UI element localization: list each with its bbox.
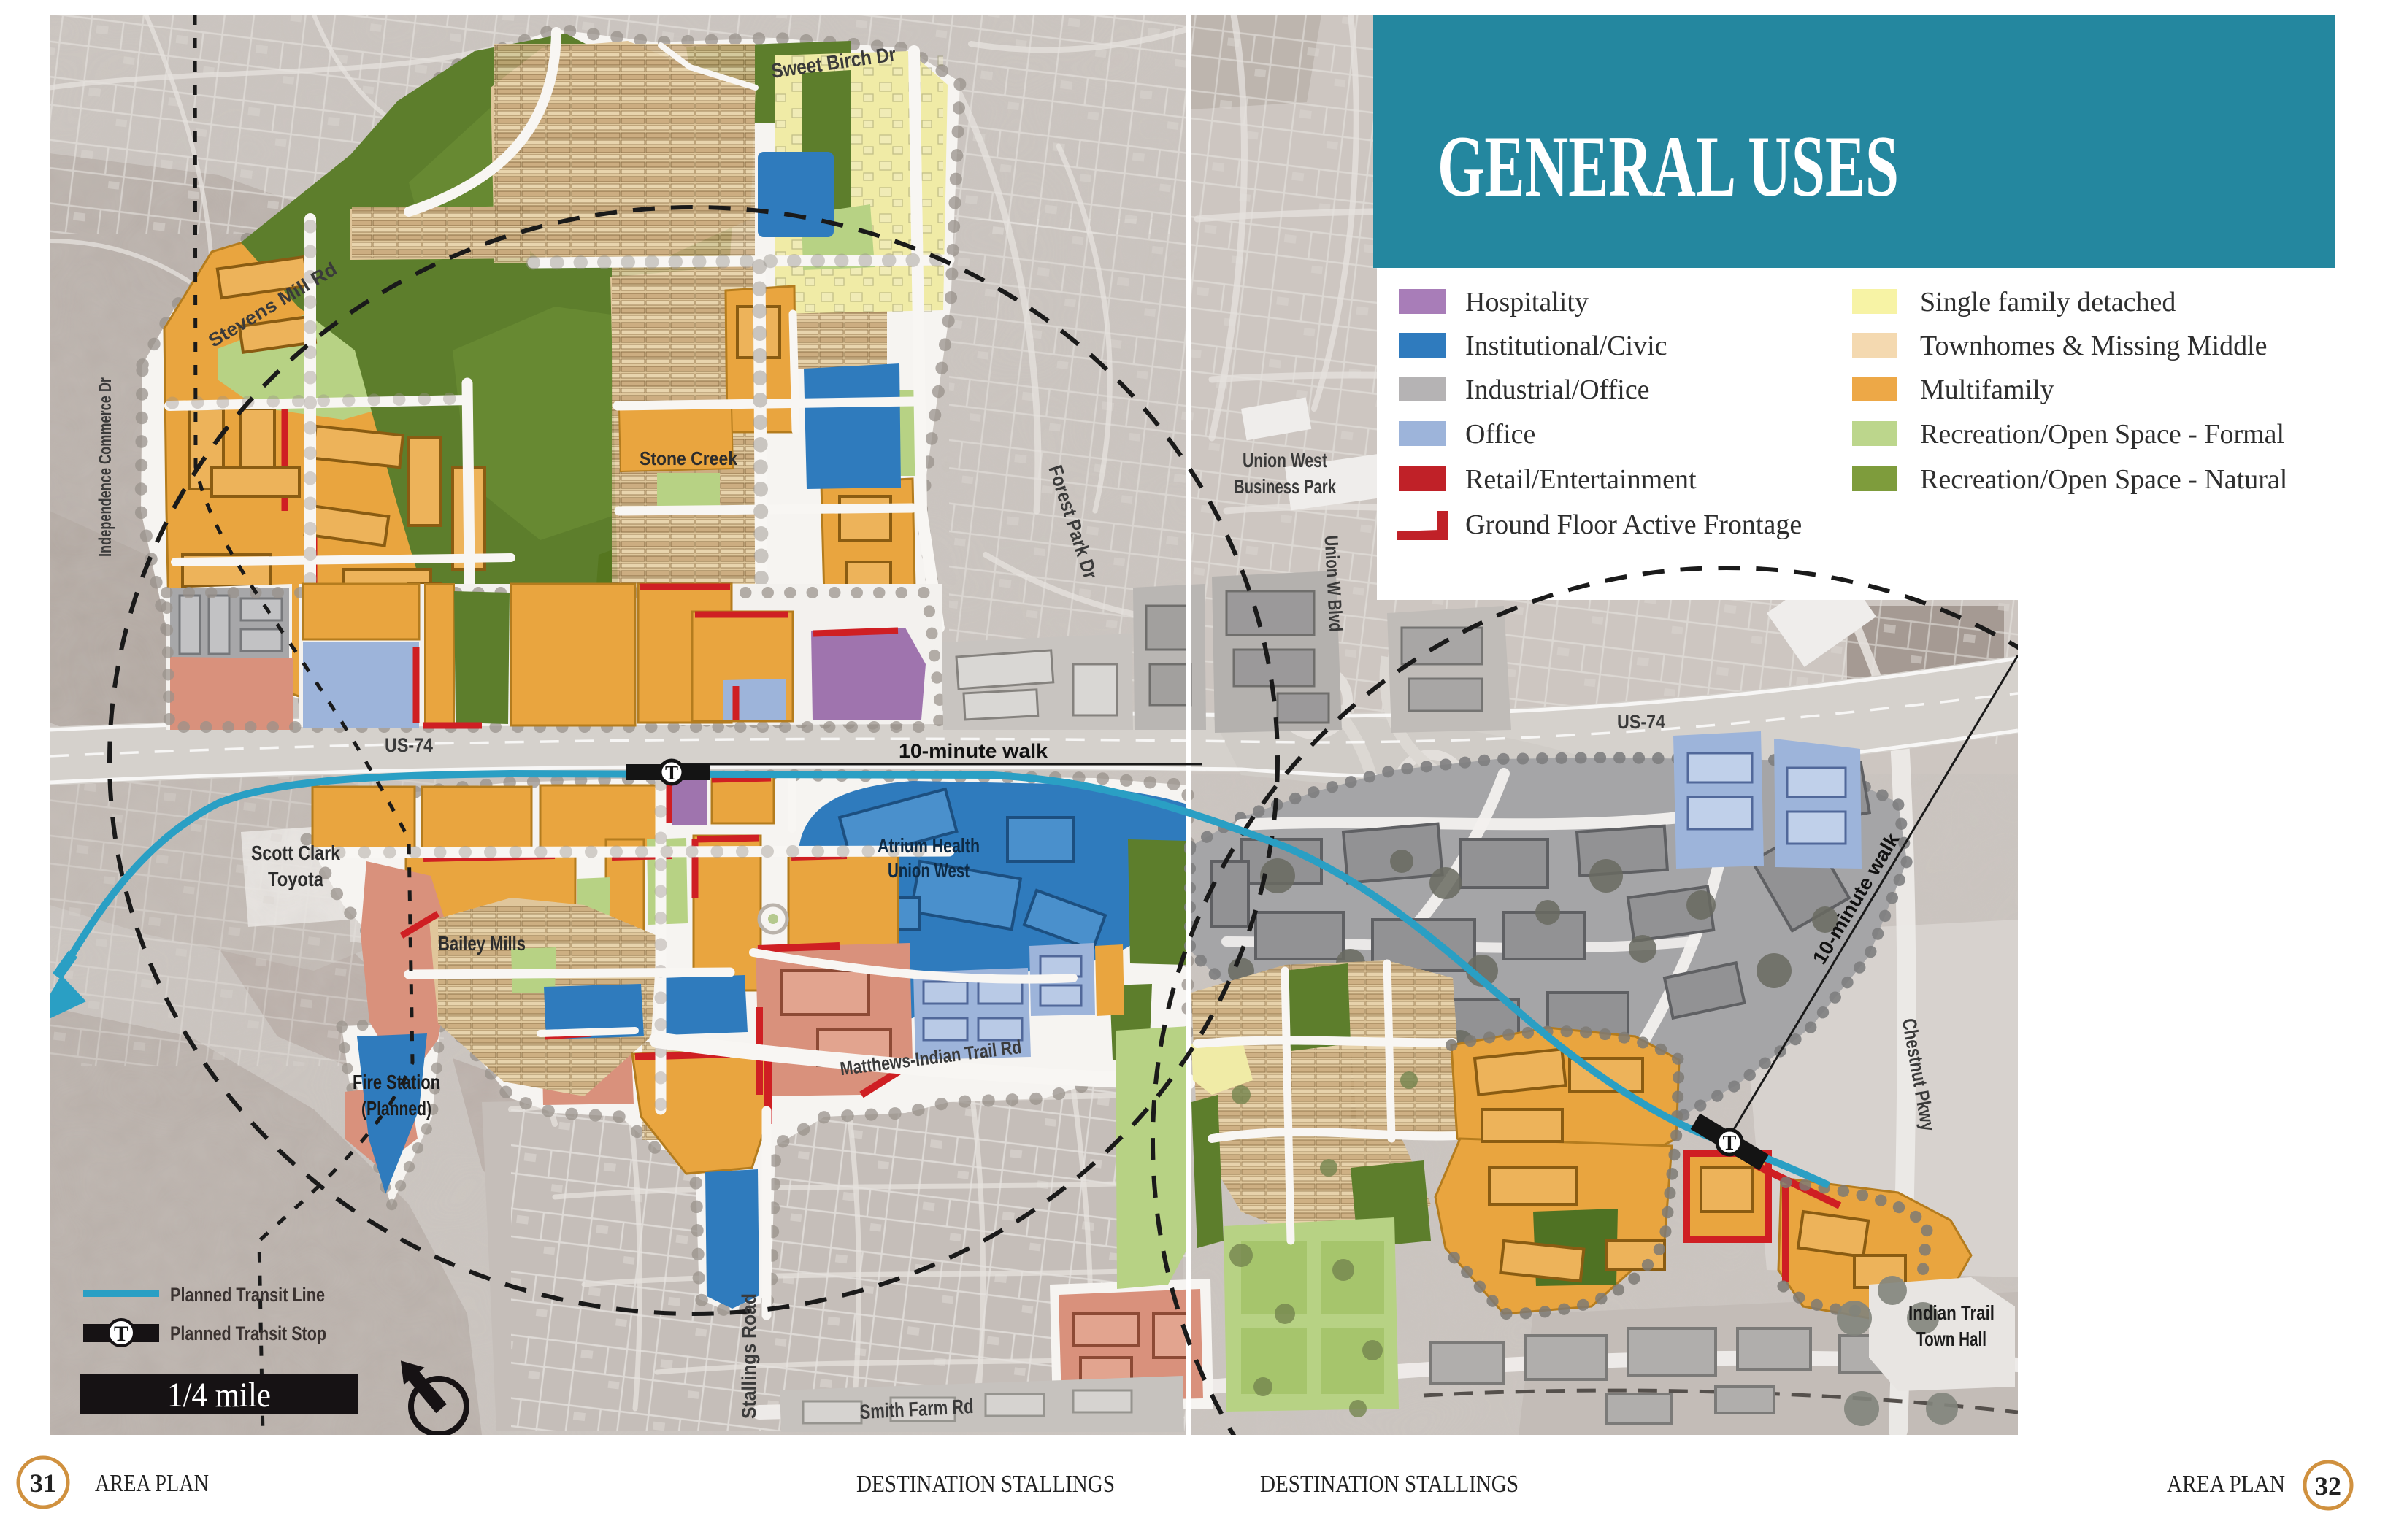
svg-text:Planned Transit Line: Planned Transit Line <box>170 1284 325 1306</box>
svg-text:Retail/Entertainment: Retail/Entertainment <box>1465 464 1697 495</box>
svg-text:Stallings Road: Stallings Road <box>738 1293 760 1419</box>
svg-text:T: T <box>1723 1132 1737 1155</box>
svg-text:Townhomes & Missing Middle: Townhomes & Missing Middle <box>1920 331 2268 361</box>
svg-text:(Planned): (Planned) <box>361 1097 431 1120</box>
svg-text:Industrial/Office: Industrial/Office <box>1465 374 1650 405</box>
svg-text:AREA PLAN: AREA PLAN <box>95 1470 209 1497</box>
svg-text:US-74: US-74 <box>1617 711 1665 733</box>
svg-text:Ground Floor Active Frontage: Ground Floor Active Frontage <box>1465 509 1802 540</box>
svg-text:Hospitality: Hospitality <box>1465 287 1589 317</box>
svg-text:US-74: US-74 <box>385 734 433 756</box>
svg-text:Institutional/Civic: Institutional/Civic <box>1465 331 1667 361</box>
svg-text:Recreation/Open Space - Formal: Recreation/Open Space - Formal <box>1920 419 2284 450</box>
svg-text:Single family detached: Single family detached <box>1920 287 2176 317</box>
svg-text:AREA PLAN: AREA PLAN <box>2167 1471 2285 1498</box>
svg-text:10-minute walk: 10-minute walk <box>899 740 1048 762</box>
svg-text:T: T <box>114 1322 128 1346</box>
svg-text:Town Hall: Town Hall <box>1916 1328 1986 1350</box>
svg-text:Toyota: Toyota <box>268 868 323 890</box>
svg-text:Fire Station: Fire Station <box>353 1071 440 1093</box>
svg-text:T: T <box>665 762 678 784</box>
svg-text:Planned Transit Stop: Planned Transit Stop <box>170 1323 326 1344</box>
svg-text:31: 31 <box>30 1468 56 1498</box>
svg-text:Atrium Health: Atrium Health <box>878 834 980 857</box>
svg-text:Office: Office <box>1465 419 1535 450</box>
svg-text:Bailey Mills: Bailey Mills <box>438 932 526 955</box>
svg-text:Independence Commerce Dr: Independence Commerce Dr <box>96 377 115 557</box>
svg-text:GENERAL USES: GENERAL USES <box>1437 118 1899 215</box>
svg-text:Indian Trail: Indian Trail <box>1908 1301 1995 1324</box>
svg-text:Business Park: Business Park <box>1234 475 1336 498</box>
svg-text:Multifamily: Multifamily <box>1920 374 2054 405</box>
svg-text:32: 32 <box>2315 1471 2341 1501</box>
svg-text:Scott Clark: Scott Clark <box>251 842 340 864</box>
svg-text:1/4 mile: 1/4 mile <box>167 1376 271 1414</box>
svg-text:DESTINATION STALLINGS: DESTINATION STALLINGS <box>856 1471 1115 1498</box>
svg-text:Recreation/Open Space - Natura: Recreation/Open Space - Natural <box>1920 464 2287 495</box>
svg-text:Union West: Union West <box>1243 449 1327 471</box>
svg-text:Union West: Union West <box>888 859 970 882</box>
svg-text:DESTINATION STALLINGS: DESTINATION STALLINGS <box>1260 1471 1519 1498</box>
svg-text:Stone Creek: Stone Creek <box>640 447 737 469</box>
